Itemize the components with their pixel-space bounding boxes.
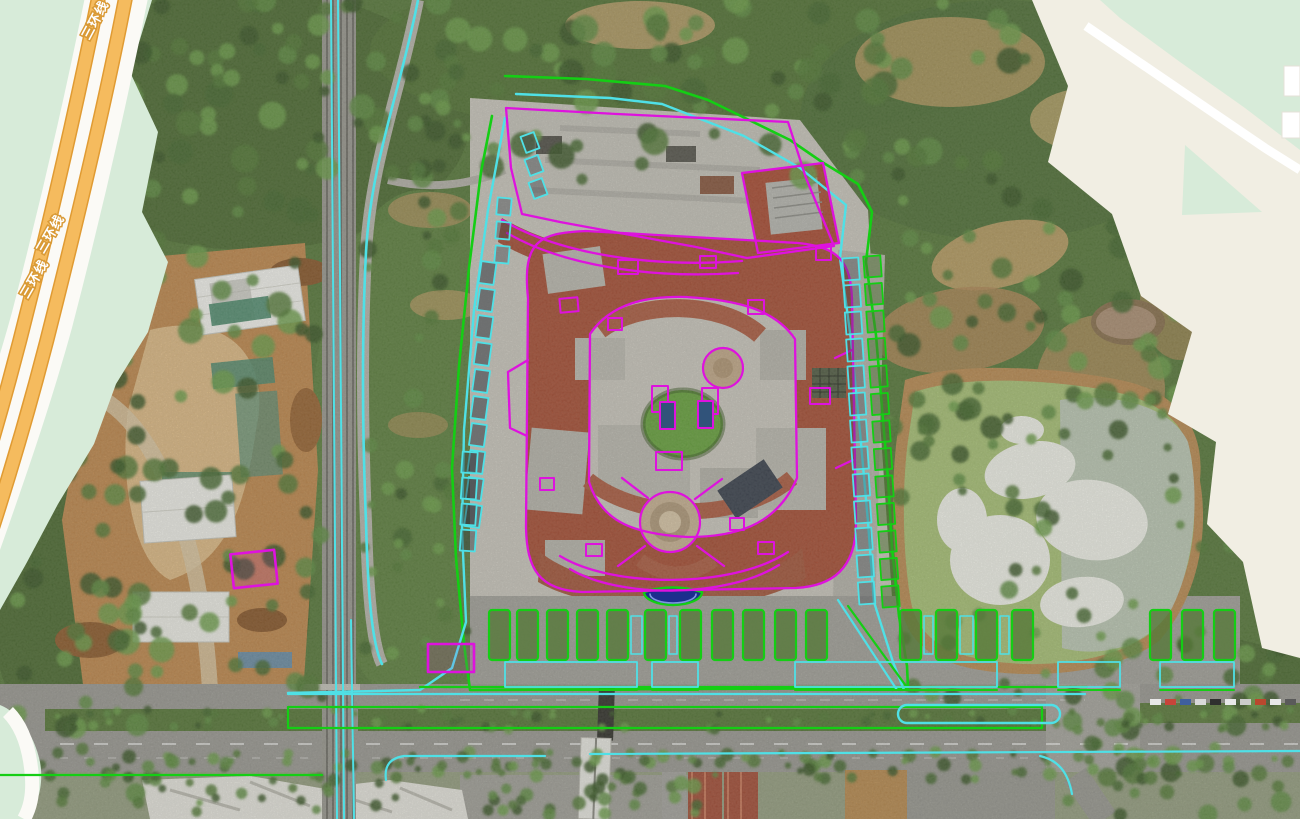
stall-marker [842, 257, 859, 280]
parked-car [1285, 699, 1296, 705]
stall-marker [469, 423, 487, 447]
parking-island [577, 610, 598, 660]
stall-marker [845, 311, 862, 334]
stall-marker [877, 503, 895, 525]
parking-island [680, 610, 701, 660]
aerial-map-svg: 三环线三环线三环线 [0, 0, 1300, 819]
parking-island [1012, 610, 1033, 660]
parked-car [1195, 699, 1206, 705]
annotated-box-magenta [230, 550, 277, 588]
stall-marker [866, 310, 884, 332]
stall-marker [461, 478, 477, 500]
stall-marker [850, 419, 867, 442]
stall-marker [847, 365, 864, 388]
annotated-box-magenta [428, 644, 474, 672]
building-detail-magenta [660, 402, 675, 429]
map-viewport[interactable]: 三环线三环线三环线 [0, 0, 1300, 819]
stall-marker [472, 369, 490, 393]
parking-island [1150, 610, 1171, 660]
stall-marker [874, 448, 892, 470]
parking-island [489, 610, 510, 660]
stall-marker [495, 221, 510, 239]
stall-marker [863, 255, 881, 277]
parked-car [1210, 699, 1221, 705]
stall-marker [853, 473, 870, 496]
stall-marker [880, 558, 898, 580]
parking-island [517, 610, 538, 660]
parking-island [1214, 610, 1235, 660]
stall-marker [461, 452, 477, 474]
parked-car [1165, 699, 1176, 705]
parking-island [775, 610, 796, 660]
stall-marker [858, 581, 875, 604]
stall-marker [869, 365, 887, 387]
parked-car [1150, 699, 1161, 705]
stall-marker [494, 245, 509, 263]
stall-marker [872, 420, 890, 442]
stall-marker [460, 530, 476, 552]
stall-marker [868, 338, 886, 360]
stall-marker [846, 338, 863, 361]
parking-island [900, 610, 921, 660]
stall-marker [471, 396, 489, 420]
stall-marker [881, 585, 899, 607]
stall-marker [855, 527, 872, 550]
parking-island [1182, 610, 1203, 660]
stall-marker [479, 261, 497, 285]
parking-island [976, 610, 997, 660]
parking-island [743, 610, 764, 660]
stall-marker [496, 197, 511, 215]
stall-marker [851, 446, 868, 469]
stall-marker [871, 393, 889, 415]
parking-island [645, 610, 666, 660]
parked-car [1240, 699, 1251, 705]
building-detail-magenta [698, 401, 713, 428]
stall-marker [857, 554, 874, 577]
stall-marker [460, 504, 476, 526]
stall-marker [865, 283, 883, 305]
stall-marker [878, 530, 896, 552]
stall-marker [844, 284, 861, 307]
stall-marker [475, 315, 493, 339]
parking-island [936, 610, 957, 660]
parking-island [712, 610, 733, 660]
parking-island [607, 610, 628, 660]
parking-island [806, 610, 827, 660]
stall-marker [474, 342, 492, 366]
parked-car [1225, 699, 1236, 705]
parked-car [1270, 699, 1281, 705]
parking-island [547, 610, 568, 660]
stall-marker [849, 392, 866, 415]
stall-marker [875, 475, 893, 497]
stall-marker [854, 500, 871, 523]
parked-car [1180, 699, 1191, 705]
parked-car [1255, 699, 1266, 705]
stall-marker [477, 288, 495, 312]
